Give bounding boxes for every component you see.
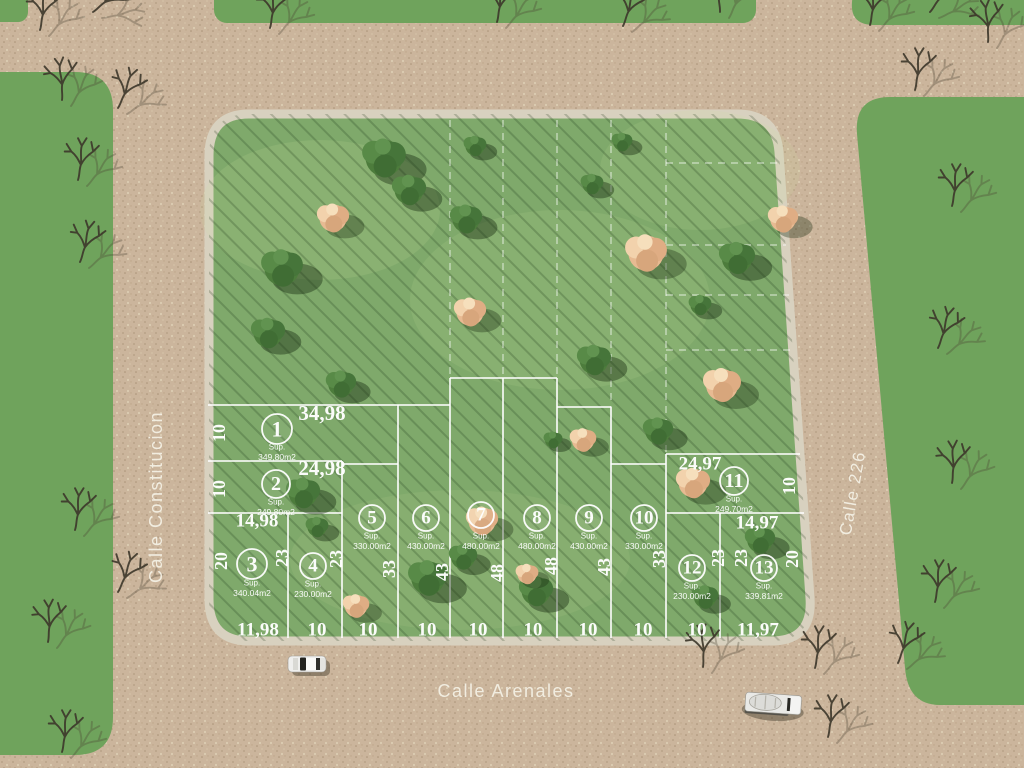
dimension-label: 43	[594, 558, 614, 576]
tree-canopy	[335, 370, 346, 381]
drum-stripe	[755, 697, 756, 707]
lot-sup-label: Sup.	[726, 495, 742, 504]
tree-canopy	[549, 432, 556, 439]
dimension-label: 11,97	[737, 620, 779, 641]
tree-canopy	[350, 604, 364, 618]
lot-area-value: 330.00m2	[353, 541, 391, 551]
car-hood	[293, 658, 298, 670]
tree-canopy	[587, 174, 595, 182]
dimension-label: 10	[634, 620, 653, 641]
dimension-label: 48	[487, 564, 507, 582]
green-strip-top-left	[0, 0, 28, 22]
tree-canopy	[586, 357, 604, 375]
tree-canopy	[350, 594, 360, 604]
tree-canopy	[549, 439, 559, 449]
lot-number: 6	[421, 508, 431, 529]
dimension-label: 23	[731, 549, 751, 567]
tree-canopy	[401, 187, 419, 205]
dimension-label: 10	[418, 620, 437, 641]
tree-canopy	[729, 242, 742, 255]
lot-area-value: 230.00m2	[673, 591, 711, 601]
dimension-label: 10	[469, 620, 488, 641]
dimension-label: 23	[326, 550, 346, 568]
dimension-label: 20	[782, 550, 802, 568]
tree-canopy	[587, 345, 600, 358]
dimension-label: 11,98	[237, 620, 279, 641]
lot-area-value: 340.04m2	[233, 588, 271, 598]
dimension-label: 23	[708, 549, 728, 567]
dimension-label: 10	[359, 620, 378, 641]
tree-canopy	[637, 234, 652, 249]
lot-number: 7	[476, 505, 486, 526]
vehicle-car	[288, 656, 330, 676]
tree-canopy	[577, 428, 587, 438]
tree-canopy	[618, 133, 626, 141]
lot-number: 13	[755, 558, 774, 579]
tree-canopy	[577, 438, 591, 452]
street-label-calle-constitucion: Calle Constitucion	[146, 411, 166, 583]
tree-canopy	[617, 140, 628, 151]
tree-canopy	[261, 318, 274, 331]
tree-canopy	[636, 250, 658, 272]
dimension-label: 33	[649, 550, 669, 568]
tree-canopy	[260, 330, 278, 348]
tree-canopy	[587, 182, 599, 194]
tree-canopy	[463, 298, 475, 310]
lot-area-value: 349,80m2	[258, 452, 296, 462]
dimension-label: 10	[524, 620, 543, 641]
tree-canopy	[652, 417, 663, 428]
dimension-label: 10	[209, 424, 229, 442]
car-windshield	[300, 658, 306, 671]
tree-canopy	[375, 138, 391, 154]
tree-canopy	[272, 265, 294, 287]
lot-sup-label: Sup.	[269, 443, 285, 452]
dimension-label: 10	[579, 620, 598, 641]
tree-canopy	[312, 517, 320, 525]
lot-area-value: 430.00m2	[407, 541, 445, 551]
tree-canopy	[334, 382, 350, 398]
dimension-label: 14,97	[736, 513, 779, 534]
tree-canopy	[273, 249, 288, 264]
dimension-label: 48	[541, 557, 561, 575]
car-rear-window	[316, 658, 320, 670]
tree-canopy	[776, 217, 792, 233]
lot-number: 9	[584, 508, 594, 529]
car-roof	[306, 658, 316, 670]
tree-canopy	[695, 303, 707, 315]
dimension-label: 10	[779, 477, 799, 495]
tree-canopy	[374, 155, 397, 178]
dimension-label: 10	[688, 620, 707, 641]
lot-number: 3	[247, 552, 258, 577]
tree-canopy	[295, 490, 313, 508]
lot-sup-label: Sup.	[305, 580, 321, 589]
tree-canopy	[522, 572, 534, 584]
lot-number: 8	[532, 508, 542, 529]
lot-sup-label: Sup.	[473, 532, 489, 541]
lot-number: 10	[635, 508, 654, 529]
dimension-label: 10	[308, 620, 327, 641]
lot-sup-label: Sup.	[244, 579, 260, 588]
site-plan-map: 1Sup.349,80m22Sup.249,80m23Sup.340.04m24…	[0, 0, 1024, 768]
dimension-label: 20	[211, 552, 231, 570]
lot-area-value: 480.00m2	[518, 541, 556, 551]
tree-canopy	[470, 144, 482, 156]
tree-canopy	[728, 255, 747, 274]
tree-canopy	[695, 295, 703, 303]
tree-canopy	[777, 205, 788, 216]
tree-canopy	[325, 215, 342, 232]
tree-canopy	[713, 382, 733, 402]
tree-canopy	[456, 555, 471, 570]
tree-canopy	[685, 480, 703, 498]
lot-sup-label: Sup.	[268, 498, 284, 507]
lot-sup-label: Sup.	[364, 532, 380, 541]
tree-canopy	[459, 205, 471, 217]
lot-area-value: 430.00m2	[570, 541, 608, 551]
dimension-label: 14,98	[236, 511, 279, 532]
tree-canopy	[326, 204, 338, 216]
lot-number: 4	[308, 556, 318, 577]
tree-canopy	[462, 309, 479, 326]
lot-number: 5	[367, 508, 377, 529]
drum-stripe	[775, 698, 776, 708]
lot-sup-label: Sup.	[636, 532, 652, 541]
dimension-label: 24,97	[679, 454, 722, 475]
tree-canopy	[458, 216, 475, 233]
lot-sup-label: Sup.	[529, 532, 545, 541]
tree-canopy	[753, 538, 769, 554]
tree-canopy	[312, 525, 324, 537]
dimension-label: 33	[379, 560, 399, 578]
tree-canopy	[714, 368, 728, 382]
lot-number: 2	[271, 473, 281, 495]
dimension-label: 10	[209, 480, 229, 498]
subdivision-plan: 1Sup.349,80m22Sup.249,80m23Sup.340.04m24…	[0, 0, 1024, 768]
lot-area-value: 230.00m2	[294, 589, 332, 599]
lot-area-value: 480.00m2	[462, 541, 500, 551]
lot-area-value: 339.81m2	[745, 591, 783, 601]
lot-sup-label: Sup.	[684, 582, 700, 591]
dimension-label: 34,98	[298, 401, 345, 425]
lot-area-value: 330.00m2	[625, 541, 663, 551]
tree-canopy	[470, 136, 478, 144]
tree-canopy	[522, 564, 530, 572]
tree-canopy	[651, 429, 667, 445]
dimension-label: 23	[272, 549, 292, 567]
tree-canopy	[528, 588, 546, 606]
car-trunk	[320, 658, 325, 670]
street-label-calle-arenales: Calle Arenales	[437, 681, 574, 701]
lot-number: 12	[683, 558, 702, 579]
tree-canopy	[402, 175, 415, 188]
lot-sup-label: Sup.	[581, 532, 597, 541]
dimension-label: 43	[432, 563, 452, 581]
dimension-label: 24,98	[298, 456, 345, 480]
lot-sup-label: Sup.	[418, 532, 434, 541]
lot-number: 1	[272, 417, 283, 442]
lot-sup-label: Sup.	[756, 582, 772, 591]
lot-number: 11	[725, 470, 744, 492]
